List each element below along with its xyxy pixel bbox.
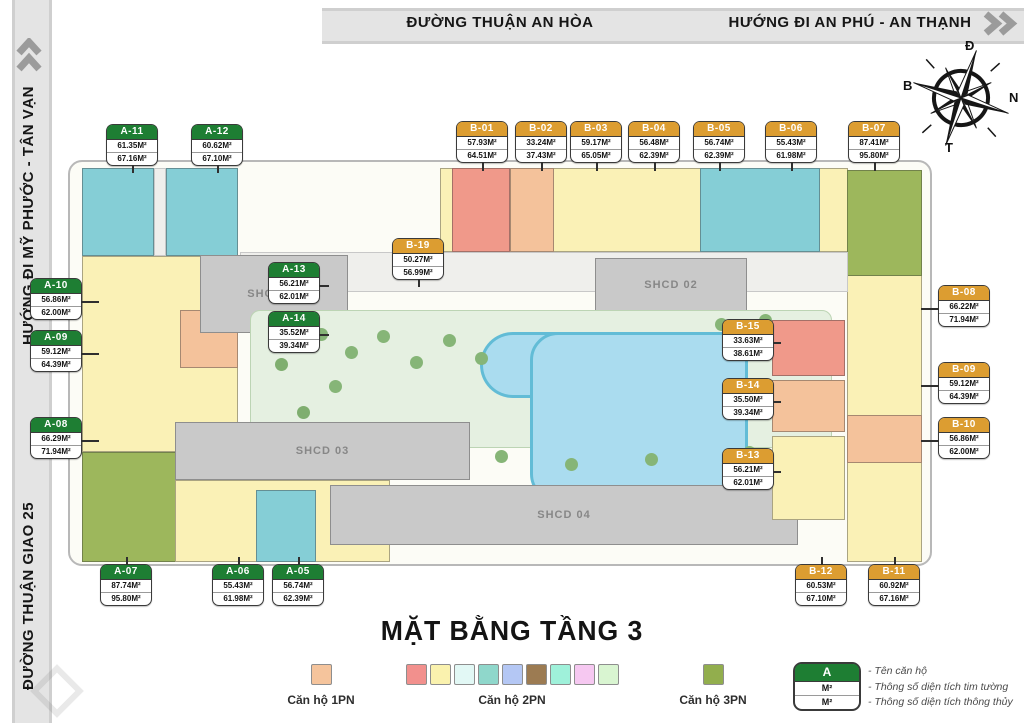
unit-area-tim-tuong: 56.48M² [629, 137, 679, 149]
unit-area-thong-thuy: 62.00M² [31, 306, 81, 319]
callout-leader-line [81, 301, 99, 303]
unit-area-tim-tuong: 55.43M² [766, 137, 816, 149]
callout-leader-line [654, 162, 656, 171]
unit-id: A-08 [31, 418, 81, 433]
unit-area-tim-tuong: 33.63M² [723, 335, 773, 347]
callout-leader-line [81, 353, 99, 355]
direction-arrow-up-icon [16, 38, 42, 76]
unit-area-tim-tuong: 87.41M² [849, 137, 899, 149]
compass-rose-icon [905, 42, 1017, 154]
unit-callout: A-13 56.21M² 62.01M² [268, 262, 320, 304]
legend-group-2pn: Căn hộ 2PN [403, 664, 621, 707]
compass-rose: Đ N T B [905, 42, 1017, 154]
legend-swatch [703, 664, 724, 685]
corridor [154, 168, 166, 256]
street-name-top: ĐƯỜNG THUẬN AN HÒA [350, 14, 650, 31]
legend-swatch [478, 664, 499, 685]
unit-id: B-19 [393, 239, 443, 254]
unit-id: B-15 [723, 320, 773, 335]
unit-id: B-06 [766, 122, 816, 137]
floor-plan: SHCD 01 SHCD 02 SHCD 03 SHCD 04 [60, 160, 940, 565]
unit-area-thong-thuy: 37.43M² [516, 149, 566, 162]
unit-callout: A-07 87.74M² 95.80M² [100, 564, 152, 606]
unit-area-thong-thuy: 71.94M² [939, 313, 989, 326]
legend-swatch [598, 664, 619, 685]
unit-callout: B-11 60.92M² 67.16M² [868, 564, 920, 606]
legend-swatch [454, 664, 475, 685]
street-name-left-bottom: ĐƯỜNG THUẬN GIAO 25 [20, 450, 37, 690]
unit-callout: A-08 66.29M² 71.94M² [30, 417, 82, 459]
unit-id: B-04 [629, 122, 679, 137]
unit-area-thong-thuy: 61.98M² [766, 149, 816, 162]
unit-area-thong-thuy: 62.00M² [939, 445, 989, 458]
unit-area-thong-thuy: 67.16M² [869, 592, 919, 605]
callout-leader-line [773, 471, 781, 473]
unit-id: B-07 [849, 122, 899, 137]
callout-leader-line [319, 334, 329, 336]
unit-area-thong-thuy: 38.61M² [723, 347, 773, 360]
unit-area-thong-thuy: 62.01M² [723, 476, 773, 489]
unit-area-tim-tuong: 35.50M² [723, 394, 773, 406]
unit-area-tim-tuong: 60.92M² [869, 580, 919, 592]
unit-callout: A-10 56.86M² 62.00M² [30, 278, 82, 320]
unit-area-tim-tuong: 56.86M² [939, 433, 989, 445]
unit-callout: A-06 55.43M² 61.98M² [212, 564, 264, 606]
legend-label-3pn: Căn hộ 3PN [670, 693, 756, 707]
callout-leader-line [791, 162, 793, 171]
unit-block [82, 168, 154, 256]
unit-area-thong-thuy: 67.16M² [107, 152, 157, 165]
unit-area-thong-thuy: 39.34M² [723, 406, 773, 419]
unit-id: B-14 [723, 379, 773, 394]
unit-id: B-01 [457, 122, 507, 137]
unit-area-tim-tuong: 87.74M² [101, 580, 151, 592]
callout-leader-line [773, 342, 781, 344]
unit-block [510, 168, 554, 252]
unit-id: B-12 [796, 565, 846, 580]
unit-area-thong-thuy: 64.39M² [939, 390, 989, 403]
callout-leader-line [773, 401, 781, 403]
callout-leader-line [126, 557, 128, 565]
unit-block [700, 168, 820, 252]
unit-callout: A-11 61.35M² 67.16M² [106, 124, 158, 166]
unit-id: B-05 [694, 122, 744, 137]
unit-area-tim-tuong: 35.52M² [269, 327, 319, 339]
unit-area-thong-thuy: 67.10M² [796, 592, 846, 605]
unit-callout: B-15 33.63M² 38.61M² [722, 319, 774, 361]
unit-area-thong-thuy: 64.51M² [457, 149, 507, 162]
callout-leader-line [921, 308, 939, 310]
compass-south-label: N [1009, 90, 1018, 105]
unit-area-tim-tuong: 33.24M² [516, 137, 566, 149]
callout-leader-line [217, 165, 219, 173]
unit-area-thong-thuy: 61.98M² [213, 592, 263, 605]
callout-leader-line [298, 557, 300, 565]
unit-area-tim-tuong: 59.12M² [939, 378, 989, 390]
unit-area-tim-tuong: 56.86M² [31, 294, 81, 306]
unit-block [772, 436, 845, 520]
legend-key-line: - Thông số diện tích tim tường [868, 680, 1013, 696]
unit-block [847, 415, 922, 463]
unit-callout: B-06 55.43M² 61.98M² [765, 121, 817, 163]
unit-area-thong-thuy: 65.05M² [571, 149, 621, 162]
legend-swatch [502, 664, 523, 685]
unit-area-tim-tuong: 66.22M² [939, 301, 989, 313]
legend-key-area2: M² [795, 695, 859, 709]
unit-callout: B-04 56.48M² 62.39M² [628, 121, 680, 163]
unit-id: A-09 [31, 331, 81, 346]
unit-area-thong-thuy: 95.80M² [849, 149, 899, 162]
unit-id: A-05 [273, 565, 323, 580]
unit-id: B-10 [939, 418, 989, 433]
unit-callout: A-09 59.12M² 64.39M² [30, 330, 82, 372]
unit-callout: B-19 50.27M² 56.99M² [392, 238, 444, 280]
unit-callout: B-01 57.93M² 64.51M² [456, 121, 508, 163]
legend-key-descriptions: - Tên căn hộ - Thông số diện tích tim tư… [868, 664, 1013, 711]
unit-callout: B-07 87.41M² 95.80M² [848, 121, 900, 163]
unit-area-tim-tuong: 60.53M² [796, 580, 846, 592]
callout-leader-line [921, 440, 939, 442]
callout-leader-line [482, 162, 484, 171]
page-title: MẶT BẰNG TẦNG 3 [26, 615, 999, 647]
unit-area-thong-thuy: 62.39M² [273, 592, 323, 605]
unit-block [847, 170, 922, 276]
unit-callout: A-05 56.74M² 62.39M² [272, 564, 324, 606]
unit-block [452, 168, 510, 252]
unit-callout: B-08 66.22M² 71.94M² [938, 285, 990, 327]
unit-id: A-14 [269, 312, 319, 327]
unit-callout: B-10 56.86M² 62.00M² [938, 417, 990, 459]
legend-key-name: A [795, 664, 859, 682]
unit-block [772, 320, 845, 376]
direction-arrow-right-icon [982, 11, 1020, 36]
unit-id: B-11 [869, 565, 919, 580]
unit-callout: B-12 60.53M² 67.10M² [795, 564, 847, 606]
compass-east-label: Đ [965, 38, 974, 53]
legend-swatch [574, 664, 595, 685]
unit-area-tim-tuong: 55.43M² [213, 580, 263, 592]
legend-label-2pn: Căn hộ 2PN [403, 693, 621, 707]
unit-area-thong-thuy: 67.10M² [192, 152, 242, 165]
unit-area-thong-thuy: 39.34M² [269, 339, 319, 352]
unit-id: A-07 [101, 565, 151, 580]
unit-id: A-12 [192, 125, 242, 140]
unit-callout: B-02 33.24M² 37.43M² [515, 121, 567, 163]
unit-area-tim-tuong: 59.12M² [31, 346, 81, 358]
unit-callout: B-09 59.12M² 64.39M² [938, 362, 990, 404]
unit-id: B-03 [571, 122, 621, 137]
callout-leader-line [541, 162, 543, 171]
legend-key-area1: M² [795, 682, 859, 695]
unit-area-thong-thuy: 71.94M² [31, 445, 81, 458]
callout-leader-line [719, 162, 721, 171]
unit-id: B-02 [516, 122, 566, 137]
swimming-pool [530, 332, 748, 502]
callout-leader-line [894, 557, 896, 565]
room-shcd-04: SHCD 04 [330, 485, 798, 545]
unit-area-tim-tuong: 61.35M² [107, 140, 157, 152]
unit-callout: B-14 35.50M² 39.34M² [722, 378, 774, 420]
legend-group-1pn: Căn hộ 1PN [278, 664, 364, 707]
unit-area-tim-tuong: 60.62M² [192, 140, 242, 152]
compass-west-label: T [945, 140, 953, 155]
legend-swatch [550, 664, 571, 685]
unit-id: B-09 [939, 363, 989, 378]
unit-area-tim-tuong: 57.93M² [457, 137, 507, 149]
unit-area-thong-thuy: 64.39M² [31, 358, 81, 371]
legend-group-3pn: Căn hộ 3PN [670, 664, 756, 707]
unit-callout: B-05 56.74M² 62.39M² [693, 121, 745, 163]
compass-north-label: B [903, 78, 912, 93]
legend-key-card: A M² M² [793, 662, 861, 711]
callout-leader-line [418, 279, 420, 287]
unit-area-tim-tuong: 66.29M² [31, 433, 81, 445]
unit-id: B-08 [939, 286, 989, 301]
unit-callout: B-03 59.17M² 65.05M² [570, 121, 622, 163]
unit-area-thong-thuy: 62.01M² [269, 290, 319, 303]
callout-leader-line [81, 440, 99, 442]
unit-area-thong-thuy: 62.39M² [629, 149, 679, 162]
legend-label-1pn: Căn hộ 1PN [278, 693, 364, 707]
unit-area-tim-tuong: 56.21M² [723, 464, 773, 476]
callout-leader-line [921, 385, 939, 387]
unit-area-tim-tuong: 50.27M² [393, 254, 443, 266]
unit-id: A-06 [213, 565, 263, 580]
room-shcd-02: SHCD 02 [595, 258, 747, 312]
unit-area-tim-tuong: 59.17M² [571, 137, 621, 149]
unit-callout: A-14 35.52M² 39.34M² [268, 311, 320, 353]
callout-leader-line [821, 557, 823, 565]
legend-key-line: - Thông số diện tích thông thủy [868, 695, 1013, 711]
unit-callout: A-12 60.62M² 67.10M² [191, 124, 243, 166]
unit-id: A-10 [31, 279, 81, 294]
unit-callout: B-13 56.21M² 62.01M² [722, 448, 774, 490]
room-shcd-03: SHCD 03 [175, 422, 470, 480]
legend-swatch [430, 664, 451, 685]
unit-id: B-13 [723, 449, 773, 464]
unit-id: A-13 [269, 263, 319, 278]
unit-area-thong-thuy: 95.80M² [101, 592, 151, 605]
unit-area-tim-tuong: 56.74M² [273, 580, 323, 592]
legend-key-line: - Tên căn hộ [868, 664, 1013, 680]
unit-block [166, 168, 238, 256]
legend-swatch [311, 664, 332, 685]
unit-area-thong-thuy: 62.39M² [694, 149, 744, 162]
unit-area-tim-tuong: 56.21M² [269, 278, 319, 290]
unit-area-tim-tuong: 56.74M² [694, 137, 744, 149]
floorplan-page: ĐƯỜNG THUẬN AN HÒA HƯỚNG ĐI AN PHÚ - AN … [0, 0, 1024, 723]
callout-leader-line [238, 557, 240, 565]
legend-swatch [406, 664, 427, 685]
callout-leader-line [874, 162, 876, 171]
callout-leader-line [319, 285, 329, 287]
unit-block [256, 490, 316, 562]
unit-block [772, 380, 845, 432]
callout-leader-line [132, 165, 134, 173]
unit-area-thong-thuy: 56.99M² [393, 266, 443, 279]
legend-swatch [526, 664, 547, 685]
callout-leader-line [596, 162, 598, 171]
street-name-top-right: HƯỚNG ĐI AN PHÚ - AN THẠNH [720, 14, 980, 31]
watermark [28, 668, 86, 710]
unit-id: A-11 [107, 125, 157, 140]
